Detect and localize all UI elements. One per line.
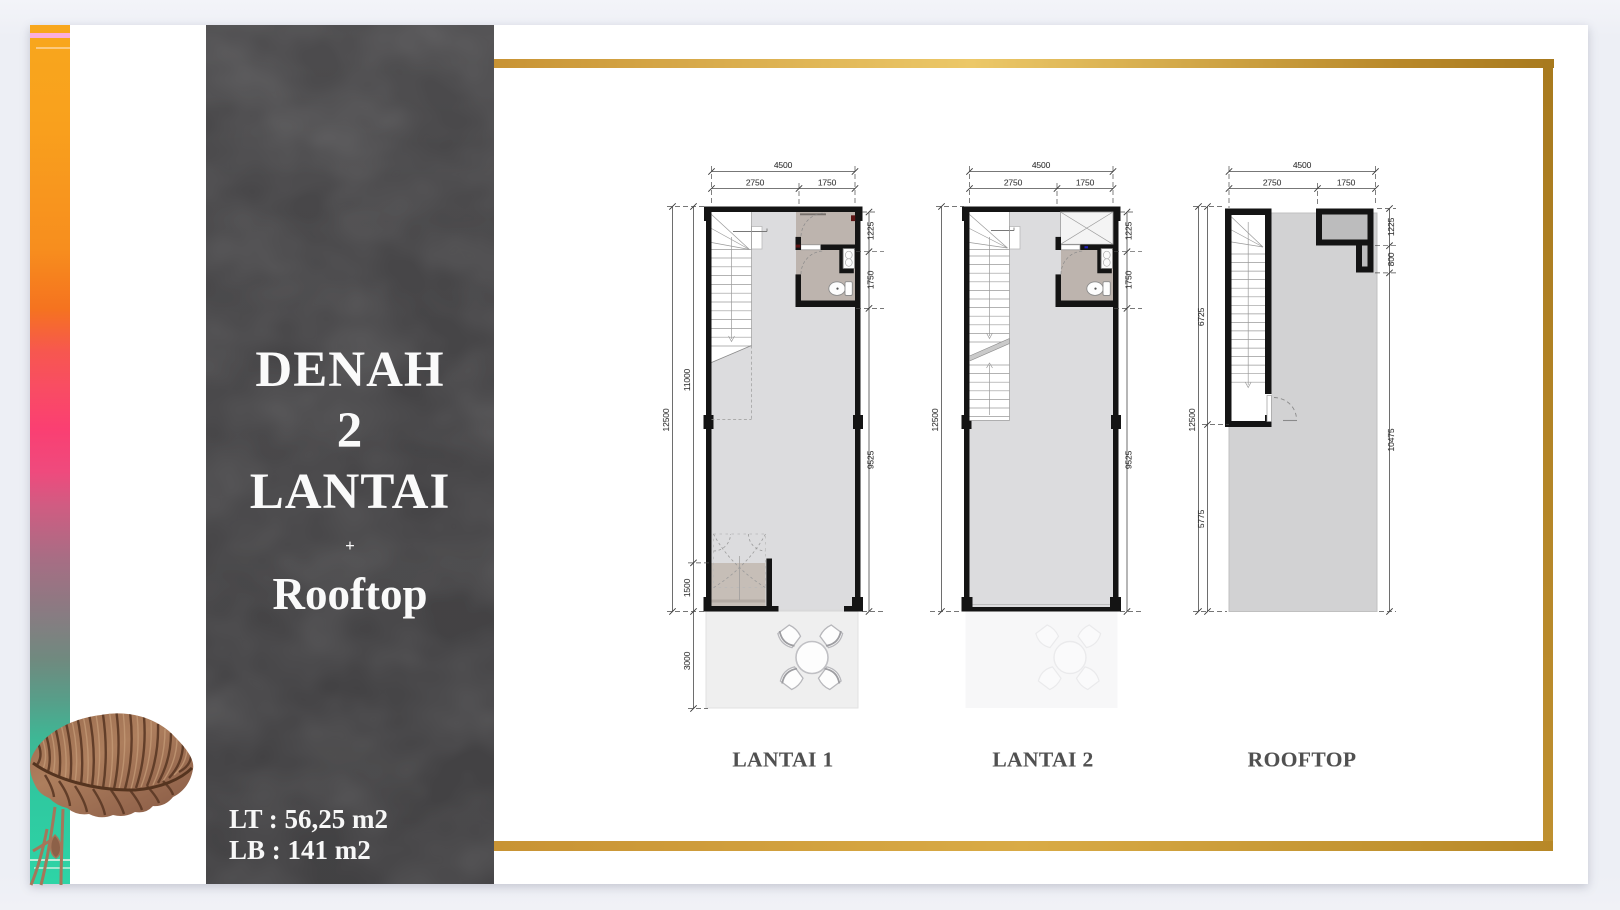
svg-text:9525: 9525	[866, 450, 876, 469]
svg-text:LANTAI 2: LANTAI 2	[992, 748, 1093, 772]
svg-text:12500: 12500	[661, 408, 671, 431]
svg-text:3000: 3000	[682, 651, 692, 670]
svg-text:5775: 5775	[1196, 509, 1206, 528]
svg-text:10475: 10475	[1386, 428, 1396, 451]
svg-text:2750: 2750	[746, 178, 765, 188]
svg-text:2750: 2750	[1263, 178, 1282, 188]
svg-text:1225: 1225	[1124, 221, 1134, 240]
svg-text:800: 800	[1386, 252, 1396, 266]
svg-text:1750: 1750	[1337, 178, 1356, 188]
svg-text:6725: 6725	[1196, 307, 1206, 326]
svg-text:1750: 1750	[1124, 270, 1134, 289]
svg-text:LANTAI 1: LANTAI 1	[732, 748, 833, 772]
svg-text:1750: 1750	[818, 178, 837, 188]
svg-text:4500: 4500	[1032, 160, 1051, 170]
svg-text:9525: 9525	[1124, 450, 1134, 469]
svg-text:11000: 11000	[682, 368, 692, 391]
svg-text:1225: 1225	[1386, 217, 1396, 236]
svg-text:12500: 12500	[930, 408, 940, 431]
svg-text:ROOFTOP: ROOFTOP	[1248, 748, 1357, 772]
svg-text:4500: 4500	[1293, 160, 1312, 170]
svg-text:12500: 12500	[1187, 408, 1197, 431]
svg-text:4500: 4500	[774, 160, 793, 170]
svg-text:1225: 1225	[866, 221, 876, 240]
svg-text:2750: 2750	[1004, 178, 1023, 188]
svg-text:1750: 1750	[1076, 178, 1095, 188]
svg-text:1750: 1750	[866, 270, 876, 289]
svg-text:1500: 1500	[682, 578, 692, 597]
